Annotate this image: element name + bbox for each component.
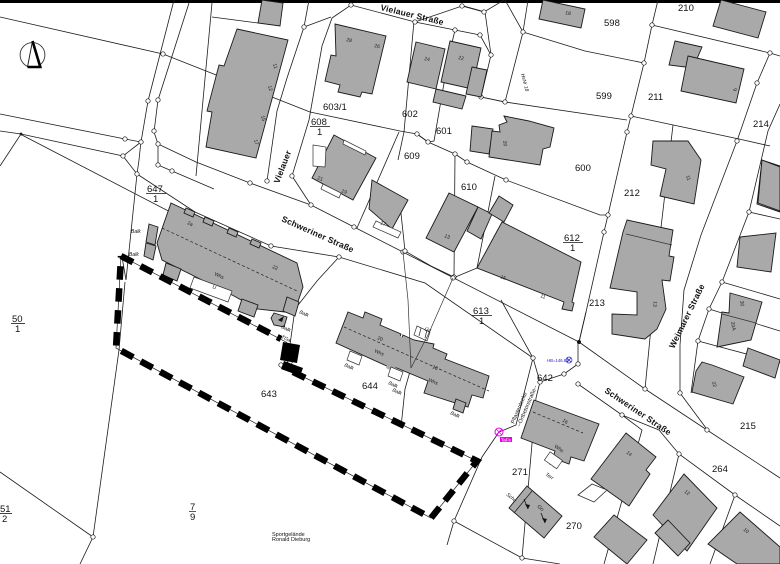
svg-text:211: 211 <box>648 92 663 103</box>
svg-text:Balk: Balk <box>129 252 139 258</box>
svg-text:210: 210 <box>678 3 694 14</box>
svg-text:264: 264 <box>712 464 728 475</box>
svg-text:1: 1 <box>479 316 484 327</box>
svg-text:214: 214 <box>753 119 769 130</box>
svg-text:601: 601 <box>436 126 452 137</box>
svg-text:1: 1 <box>317 127 322 138</box>
svg-text:644: 644 <box>362 381 378 392</box>
svg-text:610: 610 <box>461 182 477 193</box>
svg-text:598: 598 <box>604 18 620 29</box>
svg-text:271: 271 <box>512 467 528 478</box>
svg-text:1: 1 <box>15 324 20 335</box>
svg-text:603/1: 603/1 <box>323 102 347 113</box>
svg-text:Balk: Balk <box>131 229 141 235</box>
svg-text:643: 643 <box>261 389 277 400</box>
svg-text:602: 602 <box>402 109 418 120</box>
svg-text:600: 600 <box>575 163 591 174</box>
svg-text:9: 9 <box>190 512 195 523</box>
svg-text:1: 1 <box>153 194 158 205</box>
svg-text:2: 2 <box>2 514 7 525</box>
svg-text:Ronald Dieburg: Ronald Dieburg <box>272 537 310 543</box>
svg-text:642: 642 <box>537 373 553 384</box>
svg-text:270: 270 <box>566 521 582 532</box>
svg-text:TaFs: TaFs <box>501 438 512 443</box>
svg-text:1: 1 <box>570 243 575 254</box>
svg-text:599: 599 <box>596 91 612 102</box>
svg-text:213: 213 <box>589 298 605 309</box>
svg-text:215: 215 <box>740 421 756 432</box>
svg-text:212: 212 <box>624 188 640 199</box>
svg-text:609: 609 <box>404 151 420 162</box>
